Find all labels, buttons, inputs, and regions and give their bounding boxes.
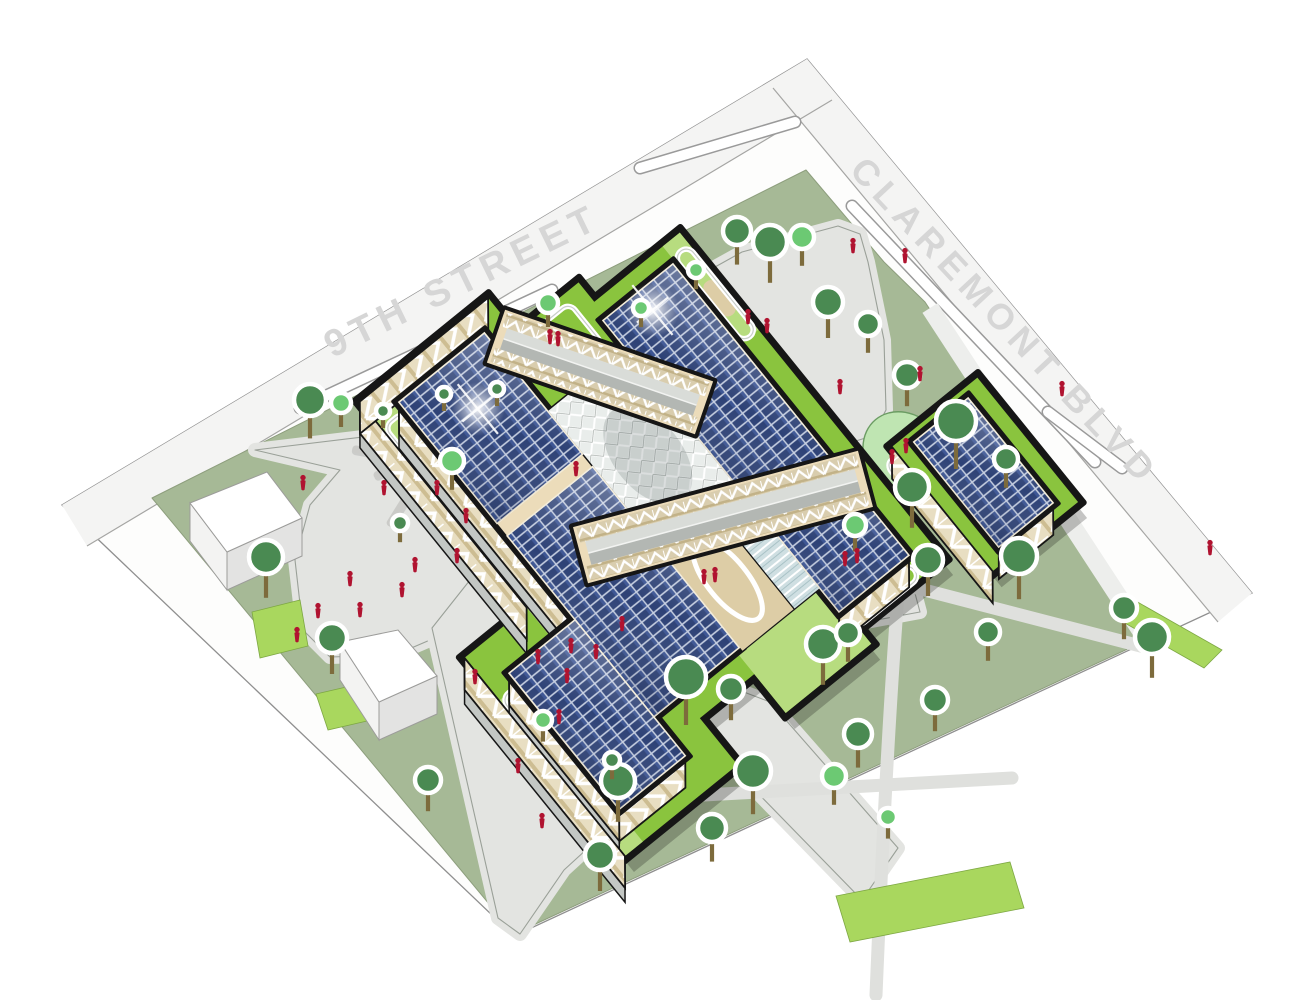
tree-canopy	[856, 312, 880, 336]
person-head	[300, 475, 305, 480]
tree-canopy	[844, 720, 872, 748]
tree-canopy	[976, 620, 1000, 644]
person-head	[315, 603, 320, 608]
person-head	[547, 329, 552, 334]
person-head	[701, 569, 706, 574]
tree-canopy	[249, 540, 283, 574]
person-head	[357, 602, 362, 607]
tree-canopy	[666, 657, 706, 697]
person-head	[764, 318, 769, 323]
site-plan: 9TH STREET CLAREMONT BLVD	[0, 0, 1304, 1000]
person-head	[535, 649, 540, 654]
person-head	[381, 480, 386, 485]
tree-canopy	[936, 401, 976, 441]
person-head	[903, 438, 908, 443]
tree-canopy	[601, 764, 635, 798]
tree-canopy	[1135, 620, 1169, 654]
tree	[1135, 620, 1169, 678]
tree-canopy	[376, 404, 390, 418]
person-head	[889, 449, 894, 454]
person-head	[472, 669, 477, 674]
person-head	[712, 567, 717, 572]
tree-canopy	[538, 293, 558, 313]
tree-canopy	[718, 676, 744, 702]
person-head	[619, 616, 624, 621]
person-head	[837, 379, 842, 384]
tree-canopy	[1001, 538, 1037, 574]
person-head	[463, 508, 468, 513]
site-plan-svg: 9TH STREET CLAREMONT BLVD	[0, 0, 1304, 1000]
tree-canopy	[822, 764, 846, 788]
tree-canopy	[490, 382, 504, 396]
tree-canopy	[913, 545, 943, 575]
person-head	[1059, 381, 1064, 386]
person-head	[515, 758, 520, 763]
tree-canopy	[415, 767, 441, 793]
person-head	[568, 638, 573, 643]
tree	[698, 814, 726, 862]
person-head	[854, 548, 859, 553]
tree-canopy	[633, 300, 649, 316]
tree-canopy	[698, 814, 726, 842]
tree-canopy	[844, 514, 866, 536]
person-head	[556, 709, 561, 714]
person-head	[902, 248, 907, 253]
tree-canopy	[585, 840, 615, 870]
person-head	[573, 461, 578, 466]
tree-canopy	[392, 515, 408, 531]
person-head	[347, 571, 352, 576]
tree-canopy	[753, 225, 787, 259]
tree-canopy	[317, 623, 347, 653]
tree-canopy	[836, 621, 860, 645]
person-head	[1207, 540, 1212, 545]
person-head	[842, 551, 847, 556]
person-head	[412, 557, 417, 562]
tree-canopy	[894, 362, 920, 388]
tree-canopy	[723, 217, 751, 245]
tree-canopy	[1111, 595, 1137, 621]
person-head	[917, 366, 922, 371]
tree-canopy	[813, 287, 843, 317]
person-head	[555, 331, 560, 336]
tree-canopy	[604, 752, 620, 768]
tree-canopy	[879, 808, 897, 826]
person-head	[850, 238, 855, 243]
person-head	[539, 813, 544, 818]
tree-canopy	[688, 262, 704, 278]
tree-canopy	[294, 384, 326, 416]
person-head	[294, 627, 299, 632]
person-head	[593, 644, 598, 649]
tree-canopy	[790, 225, 814, 249]
tree-canopy	[895, 470, 929, 504]
tree-canopy	[922, 687, 948, 713]
person-head	[399, 582, 404, 587]
person-head	[564, 668, 569, 673]
person-head	[745, 309, 750, 314]
tree-canopy	[994, 447, 1018, 471]
tree-canopy	[534, 711, 552, 729]
person-head	[434, 480, 439, 485]
tree-canopy	[440, 449, 464, 473]
tree-canopy	[735, 753, 771, 789]
tree-canopy	[437, 387, 451, 401]
person-head	[454, 548, 459, 553]
tree-canopy	[331, 393, 351, 413]
